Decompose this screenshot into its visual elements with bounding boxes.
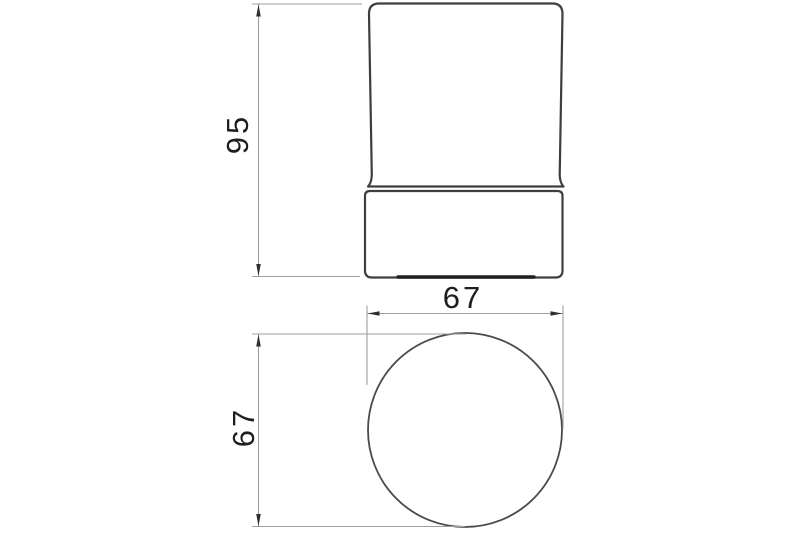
tumbler-circle-outline bbox=[368, 333, 562, 527]
width-dimension: 67 bbox=[367, 280, 563, 429]
technical-drawing-canvas: 95 67 67 bbox=[0, 0, 800, 533]
holder-outline bbox=[365, 191, 563, 278]
glass-cup-outline bbox=[368, 4, 564, 187]
height-arrow-up-icon bbox=[256, 5, 261, 17]
front-view bbox=[365, 4, 564, 278]
top-view bbox=[368, 333, 562, 527]
width-arrow-left-icon bbox=[368, 311, 380, 316]
depth-dimension-label: 67 bbox=[226, 407, 261, 447]
width-arrow-right-icon bbox=[551, 311, 563, 316]
width-dimension-label: 67 bbox=[443, 280, 483, 315]
tumbler-dimension-drawing: 95 67 67 bbox=[0, 0, 800, 533]
height-arrow-down-icon bbox=[256, 264, 261, 276]
depth-dimension: 67 bbox=[226, 334, 466, 527]
depth-arrow-down-icon bbox=[256, 514, 261, 526]
height-dimension-label: 95 bbox=[220, 114, 255, 154]
height-dimension: 95 bbox=[220, 4, 362, 277]
depth-arrow-up-icon bbox=[256, 335, 261, 347]
